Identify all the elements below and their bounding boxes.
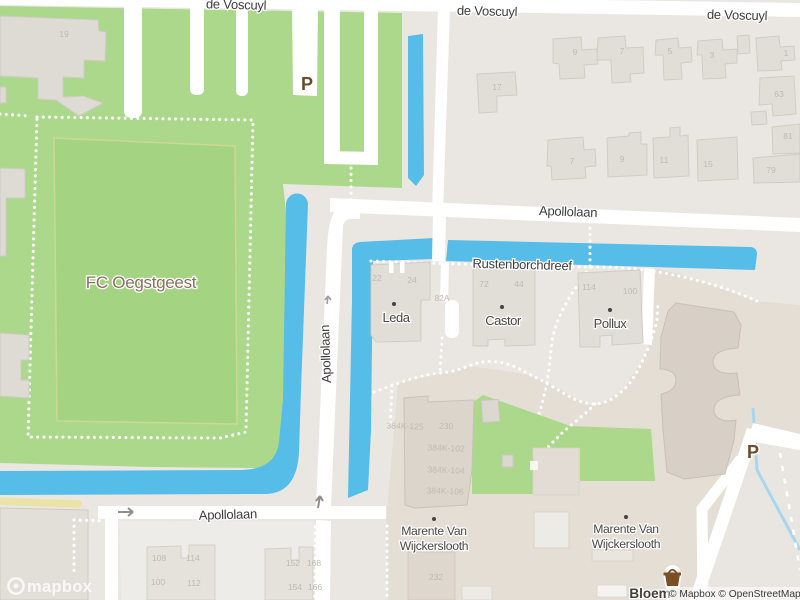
svg-text:Apollolaan: Apollolaan xyxy=(199,506,258,523)
svg-text:Bloem: Bloem xyxy=(629,586,670,600)
svg-text:100: 100 xyxy=(623,286,638,296)
svg-text:de Voscuyl: de Voscuyl xyxy=(457,3,518,20)
svg-text:232: 232 xyxy=(429,572,444,582)
svg-text:Leda: Leda xyxy=(382,310,410,325)
svg-text:82A: 82A xyxy=(434,293,449,303)
svg-text:3: 3 xyxy=(710,50,715,60)
svg-text:63: 63 xyxy=(774,89,784,99)
svg-text:22: 22 xyxy=(372,273,382,283)
svg-text:166: 166 xyxy=(308,582,323,592)
svg-text:112: 112 xyxy=(187,578,201,588)
svg-text:de Voscuyl: de Voscuyl xyxy=(707,7,768,24)
svg-text:Wijckerslooth: Wijckerslooth xyxy=(400,539,469,553)
svg-text:7: 7 xyxy=(570,156,575,166)
svg-text:Castor: Castor xyxy=(485,313,522,328)
svg-text:154: 154 xyxy=(288,582,303,592)
svg-text:9: 9 xyxy=(573,47,578,57)
svg-text:230: 230 xyxy=(439,421,454,432)
svg-text:24: 24 xyxy=(407,275,417,285)
svg-text:7: 7 xyxy=(620,46,625,56)
svg-text:© Mapbox © OpenStreetMap Impro: © Mapbox © OpenStreetMap Improve xyxy=(669,589,800,600)
svg-text:P: P xyxy=(301,74,313,94)
svg-text:152: 152 xyxy=(286,558,301,568)
svg-text:384K-104: 384K-104 xyxy=(427,464,465,475)
svg-text:100: 100 xyxy=(151,577,166,587)
svg-text:19: 19 xyxy=(59,29,69,39)
svg-text:5: 5 xyxy=(668,46,673,56)
svg-text:Apollolaan: Apollolaan xyxy=(317,325,334,384)
svg-text:Marente Van: Marente Van xyxy=(401,524,467,538)
svg-text:81: 81 xyxy=(783,131,793,141)
svg-text:de Voscuyl: de Voscuyl xyxy=(206,0,267,13)
svg-text:17: 17 xyxy=(492,82,502,92)
svg-text:Pollux: Pollux xyxy=(594,316,628,331)
svg-text:FC Oegstgeest: FC Oegstgeest xyxy=(86,273,197,292)
svg-text:384K-125: 384K-125 xyxy=(386,420,424,431)
svg-text:114: 114 xyxy=(186,553,200,563)
svg-text:108: 108 xyxy=(152,553,167,563)
svg-text:Rustenborchdreef: Rustenborchdreef xyxy=(472,256,572,274)
svg-text:384K-106: 384K-106 xyxy=(426,485,464,496)
svg-text:9: 9 xyxy=(620,154,625,164)
svg-text:P: P xyxy=(747,442,759,462)
svg-text:114: 114 xyxy=(582,282,596,292)
svg-text:168: 168 xyxy=(307,558,322,568)
svg-text:384K-102: 384K-102 xyxy=(427,442,465,453)
svg-text:72: 72 xyxy=(479,279,489,289)
svg-text:Apollolaan: Apollolaan xyxy=(539,203,598,220)
svg-text:44: 44 xyxy=(514,279,524,289)
svg-text:11: 11 xyxy=(660,155,669,165)
svg-text:Wijckerslooth: Wijckerslooth xyxy=(592,537,661,551)
svg-text:mapbox: mapbox xyxy=(27,578,93,596)
svg-text:1: 1 xyxy=(784,48,789,58)
svg-text:79: 79 xyxy=(766,165,776,175)
svg-text:Marente Van: Marente Van xyxy=(593,522,659,536)
svg-text:15: 15 xyxy=(703,159,713,169)
